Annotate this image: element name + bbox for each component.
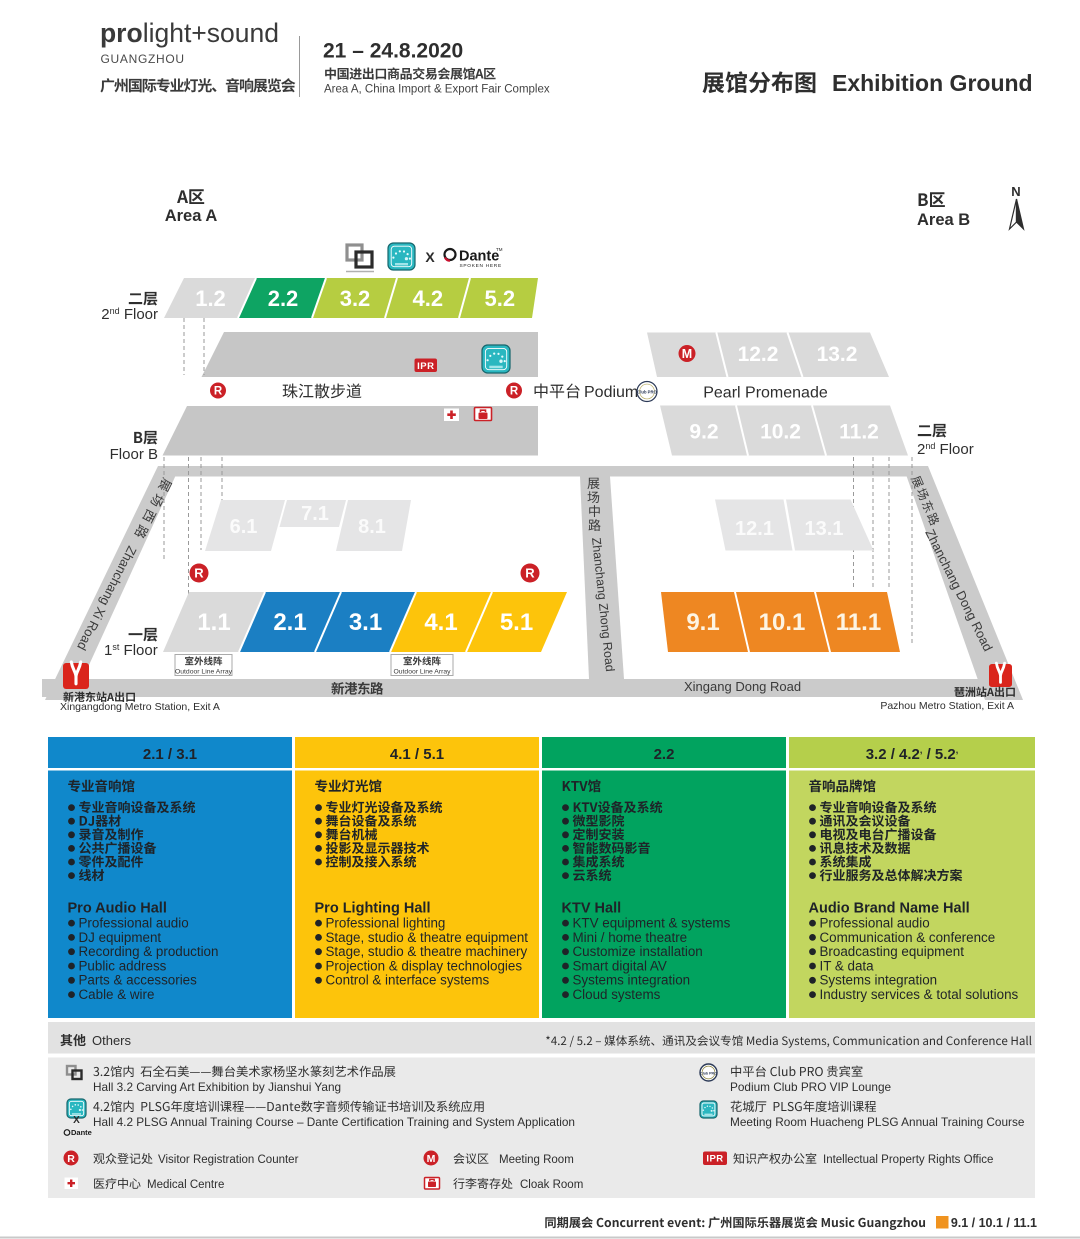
svg-text:Industry services & total solu: Industry services & total solutions [820,987,1019,1002]
svg-text:Podium: Podium [584,384,638,401]
svg-text:11.1: 11.1 [836,609,881,636]
svg-text:11.2: 11.2 [839,421,879,444]
svg-text:2.1: 2.1 [273,609,306,636]
svg-text:Meeting Room Huacheng PLSG Ann: Meeting Room Huacheng PLSG Annual Traini… [730,1115,1025,1129]
svg-text:1st Floor: 1st Floor [104,642,158,659]
svg-text:Pazhou Metro Station, Exit A: Pazhou Metro Station, Exit A [880,700,1014,712]
svg-text:Broadcasting equipment: Broadcasting equipment [820,944,965,959]
svg-text:4.2: 4.2 [413,286,444,311]
svg-text:Area B: Area B [917,211,970,229]
svg-text:Cloak Room: Cloak Room [520,1179,583,1191]
svg-text:R: R [525,566,535,581]
svg-text:12.2: 12.2 [738,343,779,366]
svg-text:1.1: 1.1 [197,609,230,636]
svg-text:Pro Lighting Hall: Pro Lighting Hall [315,901,431,917]
svg-text:Cable & wire: Cable & wire [79,987,155,1002]
svg-text:9.2: 9.2 [689,421,718,444]
svg-text:Intellectual Property Rights O: Intellectual Property Rights Office [823,1154,993,1166]
svg-text:Projection & display technolog: Projection & display technologies [326,958,523,973]
svg-text:10.2: 10.2 [760,421,801,444]
svg-text:Control & interface systems: Control & interface systems [326,973,490,988]
svg-text:Area A, China Import & Export: Area A, China Import & Export Fair Compl… [324,84,550,96]
svg-text:R: R [214,386,223,398]
svg-text:GUANGZHOU: GUANGZHOU [101,52,185,66]
svg-text:TM: TM [496,247,503,252]
svg-text:10.1: 10.1 [759,609,806,636]
svg-text:6.1: 6.1 [230,516,258,538]
svg-text:3.1: 3.1 [349,609,382,636]
svg-text:Mini / home theatre: Mini / home theatre [573,930,688,945]
svg-text:Communication & conference: Communication & conference [820,930,996,945]
svg-text:Outdoor Line Array: Outdoor Line Array [393,669,451,676]
svg-text:Systems integration: Systems integration [820,973,938,988]
svg-text:prolight+sound: prolight+sound [100,18,279,48]
svg-text:2.2: 2.2 [654,746,675,763]
svg-text:M: M [682,347,692,361]
svg-text:IPR: IPR [417,361,434,372]
svg-text:2.1 / 3.1: 2.1 / 3.1 [143,746,197,763]
svg-text:Audio Brand Name Hall: Audio Brand Name Hall [809,901,970,917]
svg-text:Outdoor Line Array: Outdoor Line Array [175,669,233,676]
svg-text:SPOKEN HERE: SPOKEN HERE [460,263,502,269]
svg-text:KTV equipment & systems: KTV equipment & systems [573,916,731,931]
svg-text:Dante: Dante [459,249,499,265]
svg-text:Xingang Dong Road: Xingang Dong Road [684,679,801,694]
svg-text:4.1: 4.1 [424,609,457,636]
svg-text:13.2: 13.2 [817,343,858,366]
svg-text:DJ equipment: DJ equipment [79,930,162,945]
svg-text:7.1: 7.1 [301,503,329,525]
svg-text:Floor B: Floor B [110,446,158,463]
svg-text:Professional audio: Professional audio [79,916,189,931]
svg-text:8.1: 8.1 [358,516,386,538]
svg-text:X: X [73,1115,80,1126]
svg-text:Area A: Area A [165,207,218,225]
svg-text:Podium Club PRO VIP Lounge: Podium Club PRO VIP Lounge [730,1080,892,1094]
svg-text:Recording & production: Recording & production [79,944,219,959]
svg-text:R: R [67,1153,75,1165]
svg-text:Exhibition Ground: Exhibition Ground [832,70,1033,96]
svg-text:Professional lighting: Professional lighting [326,916,446,931]
svg-text:4.1 / 5.1: 4.1 / 5.1 [390,746,444,763]
svg-text:13.1: 13.1 [805,518,844,540]
svg-text:M: M [427,1153,436,1165]
svg-text:Xingangdong Metro Station, Exi: Xingangdong Metro Station, Exit A [60,701,220,713]
svg-text:9.1: 9.1 [686,609,719,636]
svg-text:21 – 24.8.2020: 21 – 24.8.2020 [323,40,463,63]
svg-text:R: R [510,386,519,398]
svg-text:X: X [425,249,435,265]
svg-text:Visitor Registration Counter: Visitor Registration Counter [158,1154,299,1166]
svg-text:3.2 / 4.2, / 5.2,: 3.2 / 4.2, / 5.2, [866,745,959,763]
svg-text:KTV Hall: KTV Hall [562,901,622,917]
svg-text:12.1: 12.1 [735,518,774,540]
svg-text:Professional audio: Professional audio [820,916,930,931]
svg-text:Others: Others [92,1033,132,1048]
svg-text:9.1 / 10.1 / 11.1: 9.1 / 10.1 / 11.1 [951,1216,1037,1230]
svg-text:Systems integration: Systems integration [573,973,691,988]
svg-text:Customize installation: Customize installation [573,944,703,959]
svg-text:Public address: Public address [79,958,167,973]
svg-text:3.2: 3.2 [340,286,371,311]
svg-text:1.2: 1.2 [195,286,226,311]
svg-text:Cloud systems: Cloud systems [573,987,661,1002]
svg-text:Hall 3.2 Carving Art Exhibiti: Hall 3.2 Carving Art Exhibition by Jians… [93,1080,341,1094]
svg-text:Stage, studio & theatre equipm: Stage, studio & theatre equipment [326,930,529,945]
svg-text:Medical Centre: Medical Centre [147,1179,224,1191]
svg-text:Dante: Dante [71,1128,92,1137]
svg-text:R: R [194,566,204,581]
svg-text:Stage, studio & theatre machin: Stage, studio & theatre machinery [326,944,528,959]
svg-text:Hall 4.2 PLSG Annual Training: Hall 4.2 PLSG Annual Training Course – D… [93,1115,575,1129]
svg-text:Smart digital AV: Smart digital AV [573,958,667,973]
svg-text:5.1: 5.1 [500,609,533,636]
svg-text:Club PRO: Club PRO [700,1072,717,1076]
svg-text:Parts & accessories: Parts & accessories [79,973,198,988]
svg-text:Meeting Room: Meeting Room [499,1154,574,1166]
svg-text:Club PRO: Club PRO [637,390,657,395]
svg-text:Pro Audio Hall: Pro Audio Hall [68,901,167,917]
svg-text:IPR: IPR [706,1154,723,1165]
svg-text:IT & data: IT & data [820,958,875,973]
svg-text:5.2: 5.2 [485,286,516,311]
svg-text:Pearl Promenade: Pearl Promenade [703,385,828,402]
svg-text:2.2: 2.2 [268,286,299,311]
svg-text:N: N [1011,184,1020,199]
